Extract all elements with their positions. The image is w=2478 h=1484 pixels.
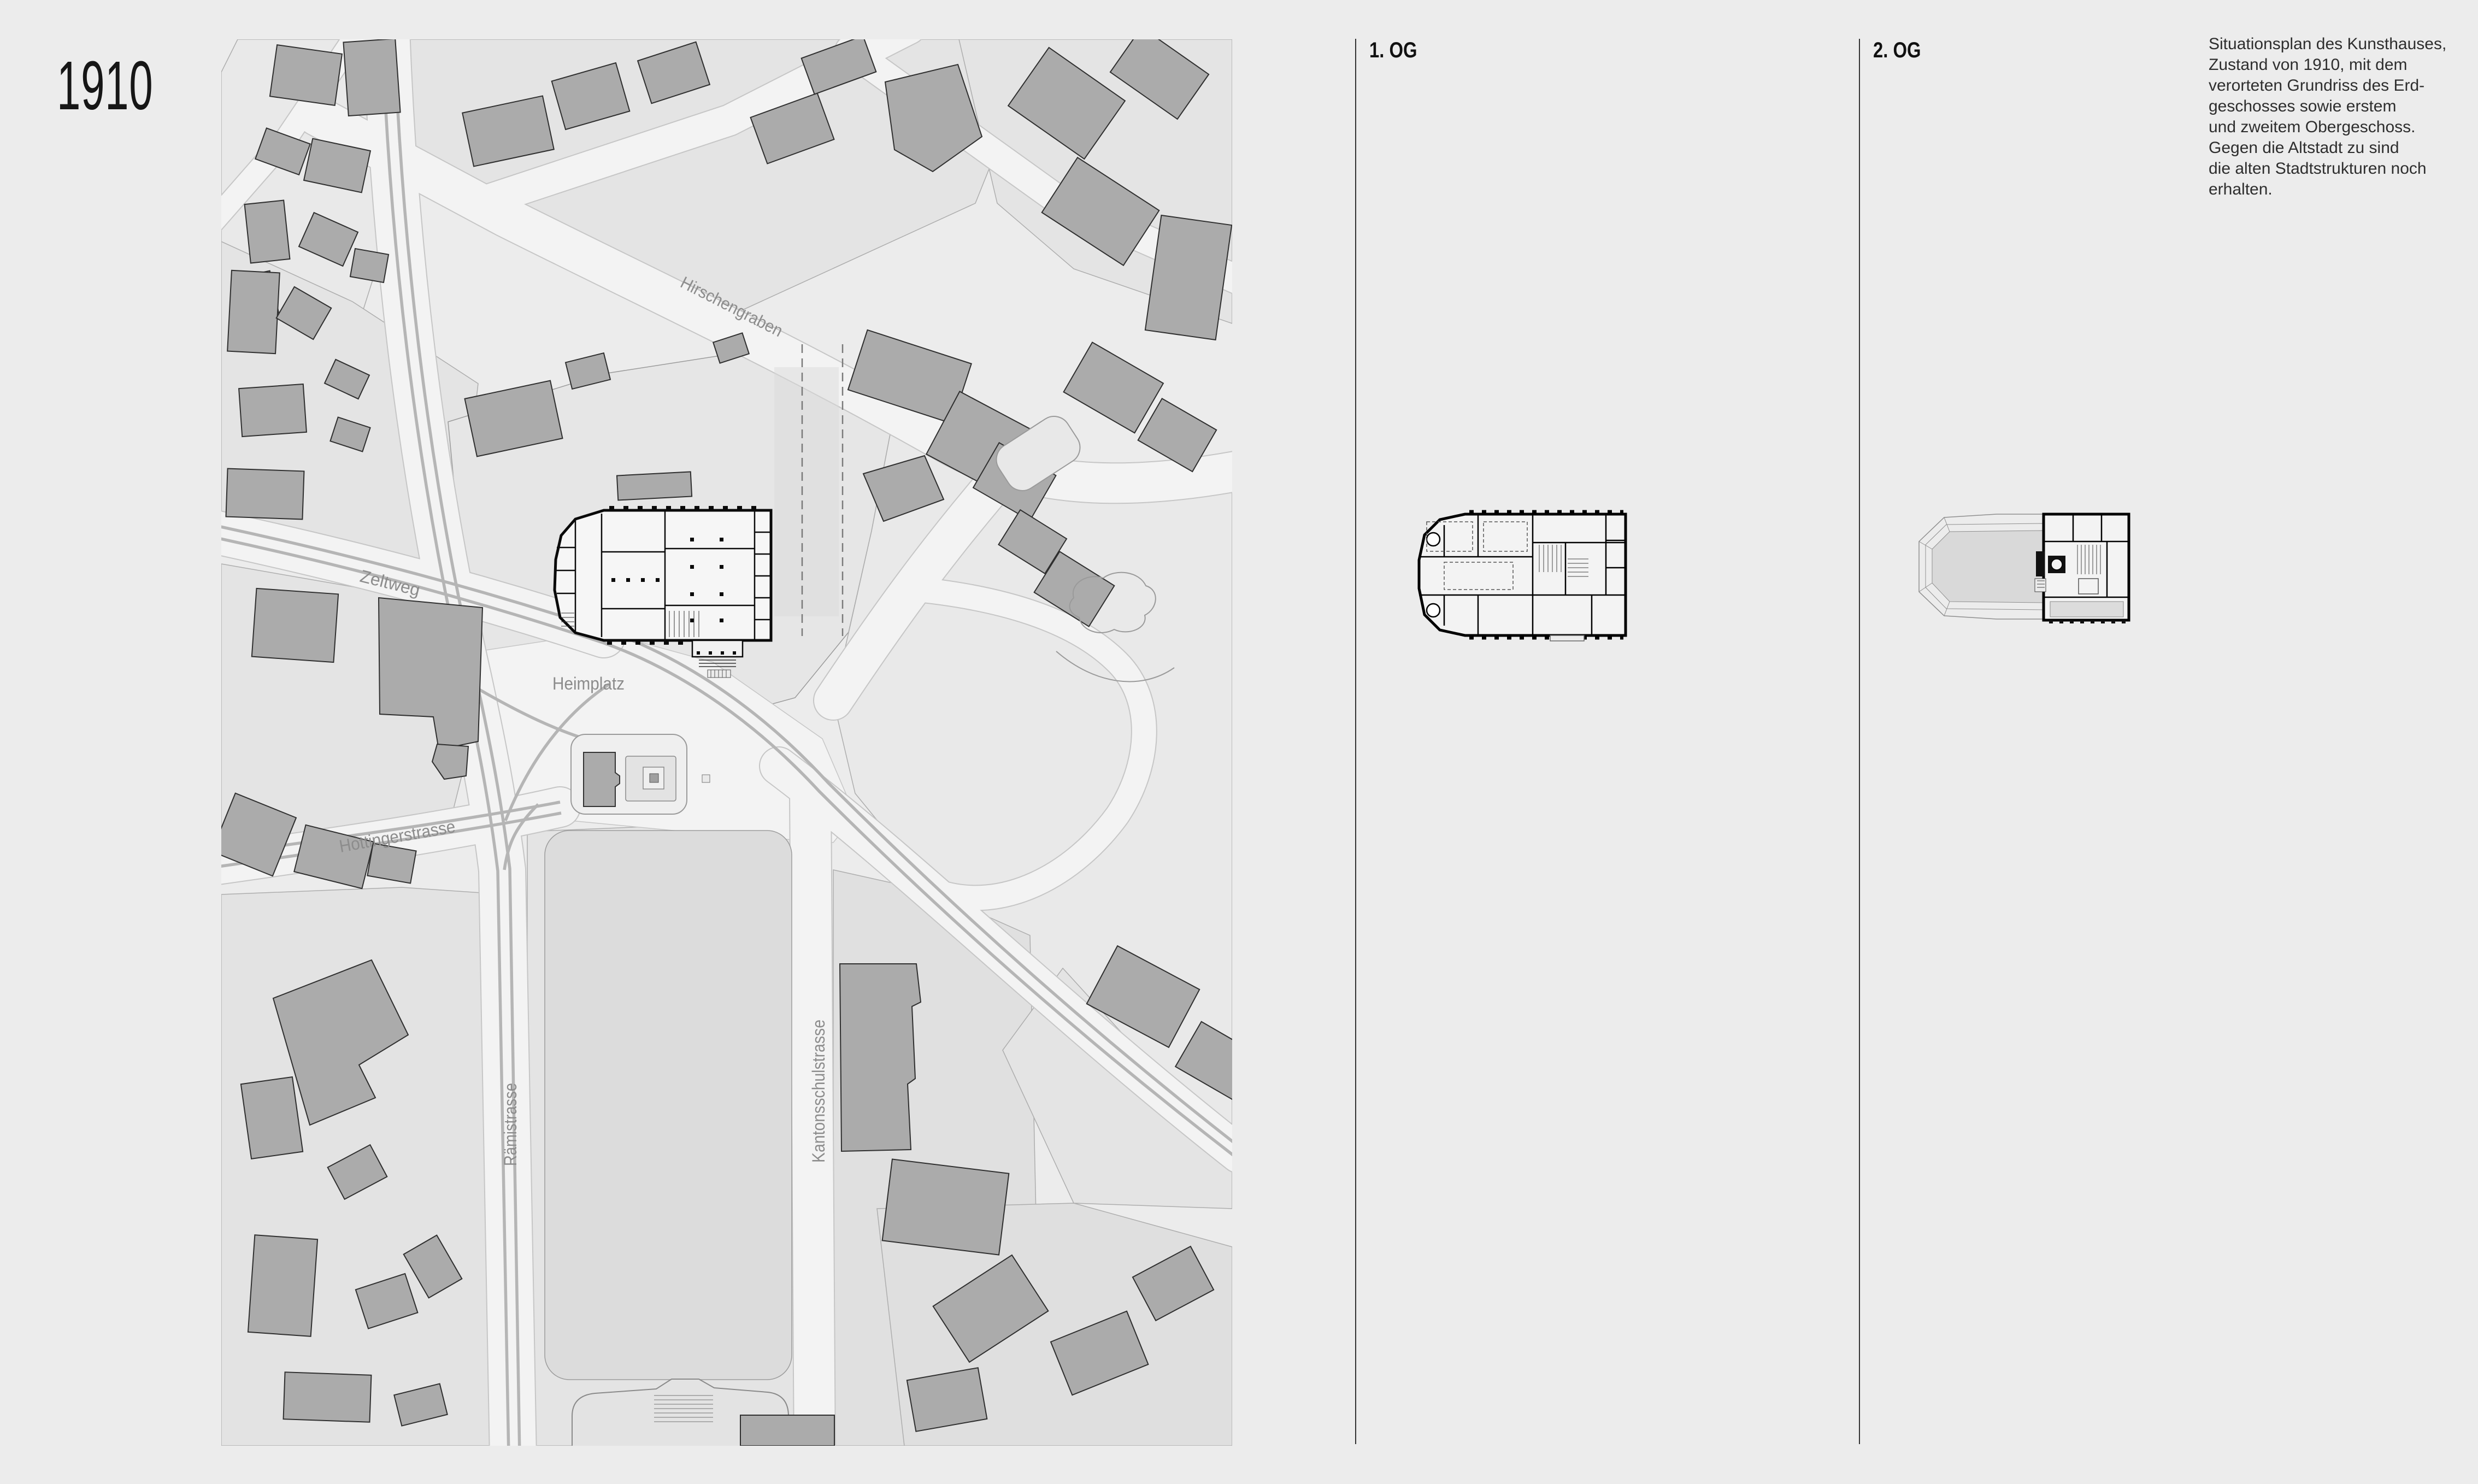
year-label: 1910	[57, 46, 153, 125]
caption-text: Situationsplan des Kunsthauses, Zustand …	[2209, 34, 2471, 200]
column-divider-2	[1859, 39, 1860, 1444]
floorplan-og1	[1411, 507, 1634, 642]
site-map: Hirschengraben Zeltweg Heimplatz Hotting…	[221, 39, 1232, 1446]
schoolyard	[545, 831, 792, 1380]
page: 1910 EG 1. OG 2. OG	[0, 0, 2478, 1484]
street-label-raemistrasse: Rämistrasse	[501, 1083, 520, 1166]
panel-label-og1: 1. OG	[1369, 38, 1417, 63]
column-divider-1	[1355, 39, 1356, 1444]
extension-ghost	[774, 367, 839, 616]
street-label-kantonsschulstrasse: Kantonsschulstrasse	[809, 1020, 828, 1163]
floorplan-og2	[1915, 510, 2133, 624]
panel-label-og2: 2. OG	[1873, 38, 1921, 63]
street-label-heimplatz: Heimplatz	[552, 674, 625, 693]
